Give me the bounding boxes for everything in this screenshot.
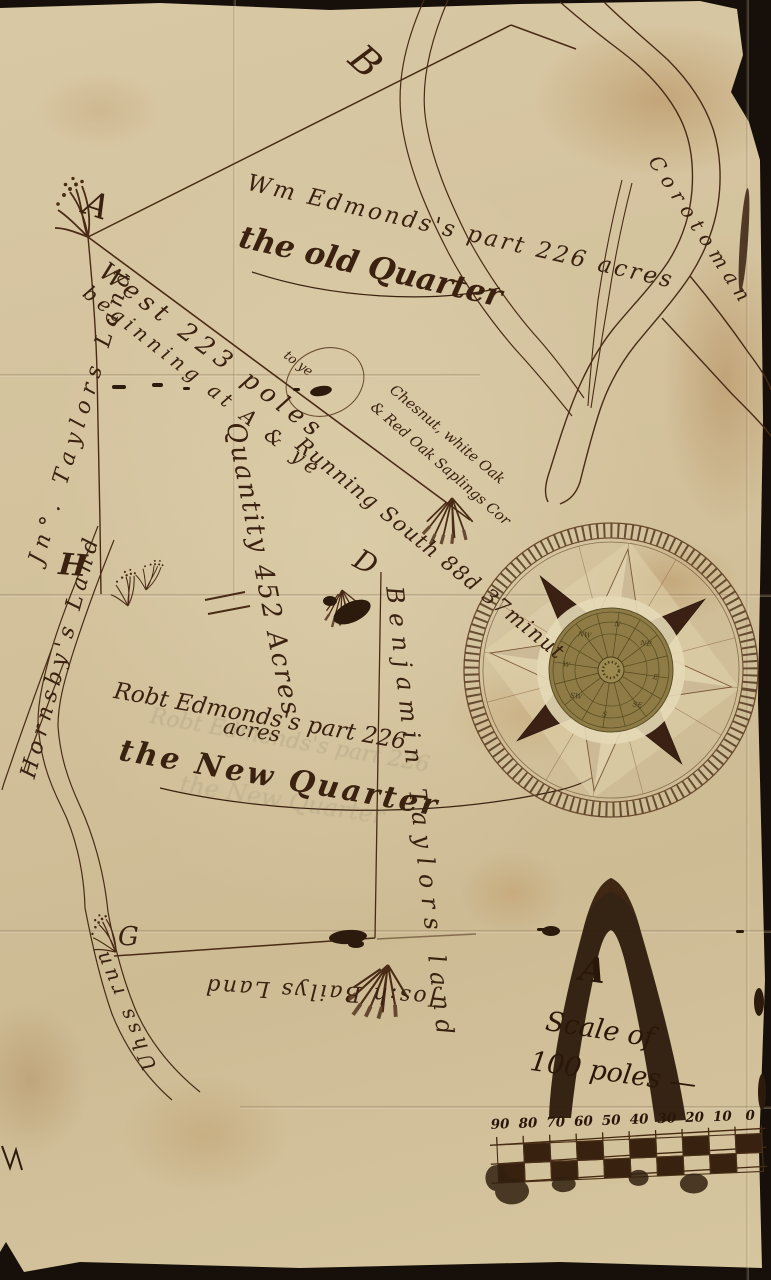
stream-hornsby-branch — [2, 526, 114, 912]
creek-tributary — [400, 0, 584, 416]
scale-tick: 90 — [486, 1116, 514, 1133]
scale-tick: 20 — [680, 1109, 708, 1126]
svg-text:NE: NE — [639, 639, 652, 649]
scale-tick: 40 — [625, 1111, 653, 1128]
svg-text:E: E — [651, 673, 658, 682]
scale-tick: 10 — [708, 1108, 736, 1125]
scale-tick: 70 — [542, 1114, 570, 1131]
scale-caption-a: A — [577, 952, 608, 989]
corner-label-g: G — [118, 924, 139, 950]
scale-tick: 30 — [653, 1110, 681, 1127]
scale-tick: 50 — [597, 1112, 625, 1129]
scale-tick: 60 — [569, 1113, 597, 1130]
scale-tick: 0 — [736, 1107, 764, 1124]
scale-tick: 80 — [514, 1115, 542, 1132]
scale-bar — [484, 1125, 769, 1205]
svg-text:SE: SE — [632, 700, 643, 709]
survey-plat-photo: N NE E SE S SW W NW — [0, 0, 771, 1280]
compass-rose: N NE E SE S SW W NW — [445, 504, 771, 836]
